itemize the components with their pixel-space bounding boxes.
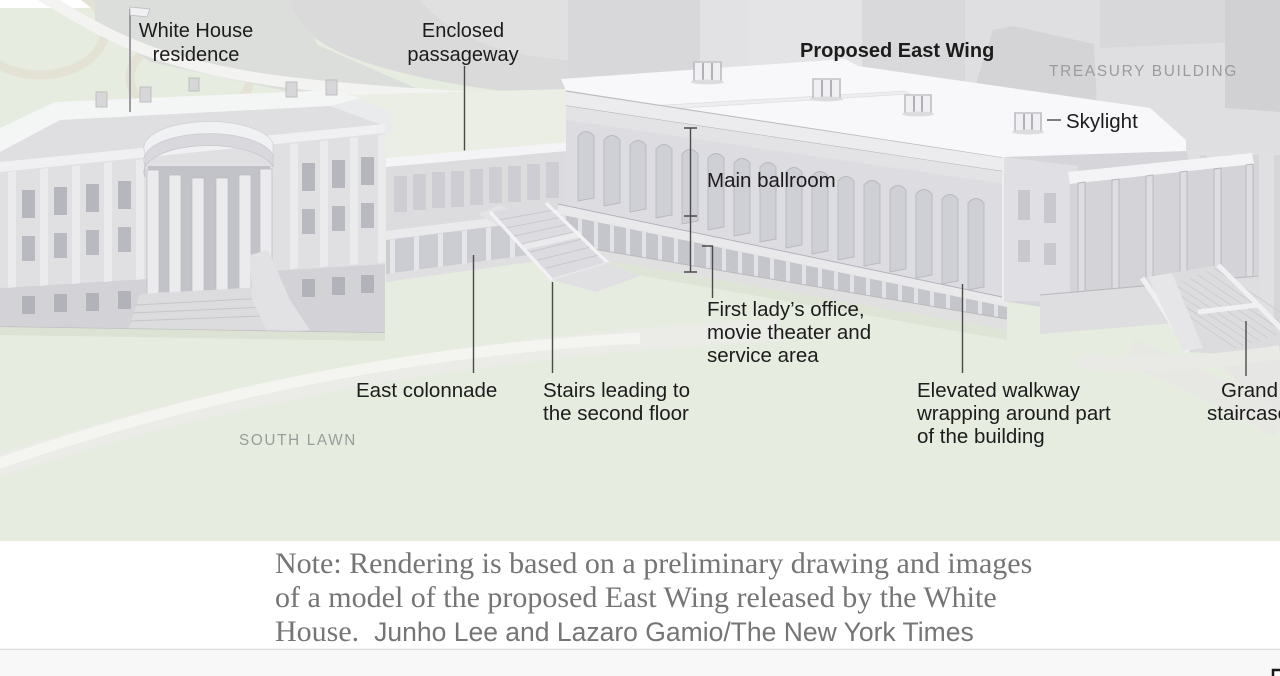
svg-text:White House: White House — [139, 20, 254, 42]
svg-text:staircase: staircase — [1207, 402, 1280, 425]
svg-text:TREASURY BUILDING: TREASURY BUILDING — [1049, 63, 1238, 80]
svg-text:Main ballroom: Main ballroom — [707, 169, 836, 192]
svg-text:First lady’s office,: First lady’s office, — [707, 298, 865, 321]
svg-text:East colonnade: East colonnade — [356, 379, 497, 402]
svg-text:Skylight: Skylight — [1066, 110, 1138, 133]
svg-text:SOUTH LAWN: SOUTH LAWN — [239, 432, 357, 449]
svg-text:the second floor: the second floor — [543, 402, 689, 425]
svg-text:House. Junho Lee and Lazaro G: House. Junho Lee and Lazaro Gamio/The Ne… — [275, 615, 974, 648]
svg-text:of the building: of the building — [917, 425, 1045, 448]
svg-text:Proposed East Wing: Proposed East Wing — [800, 40, 994, 62]
svg-text:service area: service area — [707, 344, 819, 367]
svg-text:Enclosed: Enclosed — [422, 20, 504, 42]
svg-text:Stairs leading to: Stairs leading to — [543, 379, 690, 402]
svg-text:residence: residence — [153, 44, 240, 66]
svg-text:passageway: passageway — [407, 44, 518, 66]
svg-text:movie theater and: movie theater and — [707, 321, 871, 344]
svg-text:Elevated walkway: Elevated walkway — [917, 379, 1081, 402]
svg-text:wrapping around part: wrapping around part — [916, 402, 1111, 425]
svg-text:of a model of the proposed Eas: of a model of the proposed East Wing rel… — [275, 581, 997, 614]
svg-text:Grand: Grand — [1221, 379, 1278, 402]
svg-text:Note: Rendering is based on a: Note: Rendering is based on a preliminar… — [275, 547, 1032, 580]
